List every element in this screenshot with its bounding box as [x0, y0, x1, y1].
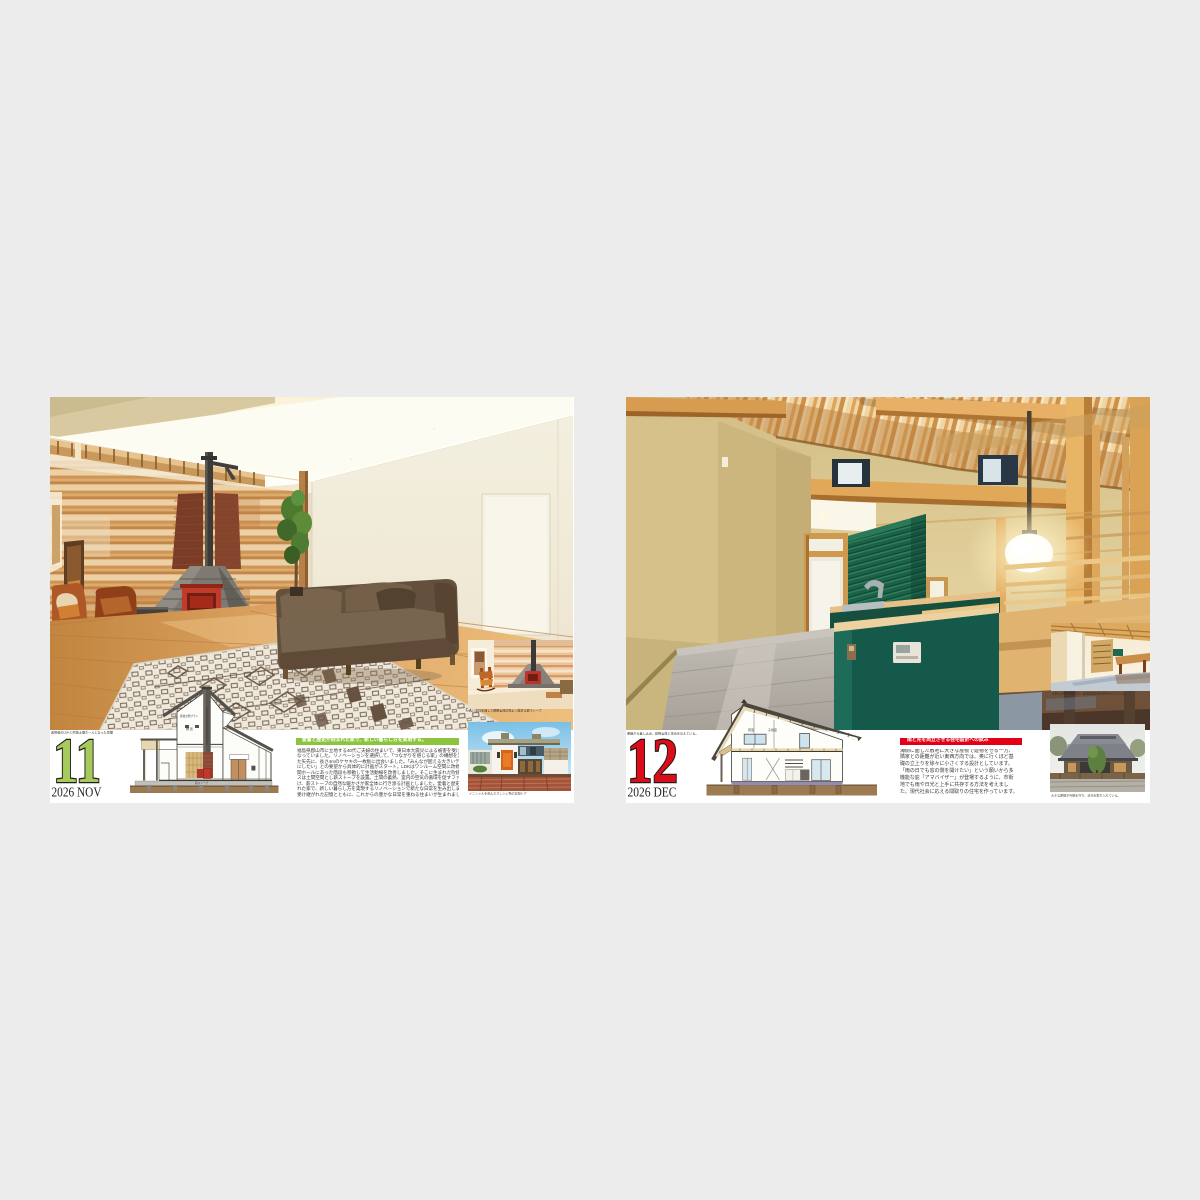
svg-text:2026 DEC: 2026 DEC: [628, 785, 677, 800]
svg-text:2026 NOV: 2026 NOV: [52, 785, 102, 800]
svg-text:薪独立側プラン: 薪独立側プラン: [180, 714, 199, 718]
svg-text:子供室: 子供室: [768, 727, 777, 732]
svg-text:薪ストーブ: 薪ストーブ: [195, 781, 208, 785]
svg-text:寝室: 寝室: [748, 727, 754, 732]
svg-text:11: 11: [53, 735, 101, 785]
svg-text:物 置: 物 置: [186, 726, 193, 731]
svg-text:12: 12: [627, 735, 678, 785]
